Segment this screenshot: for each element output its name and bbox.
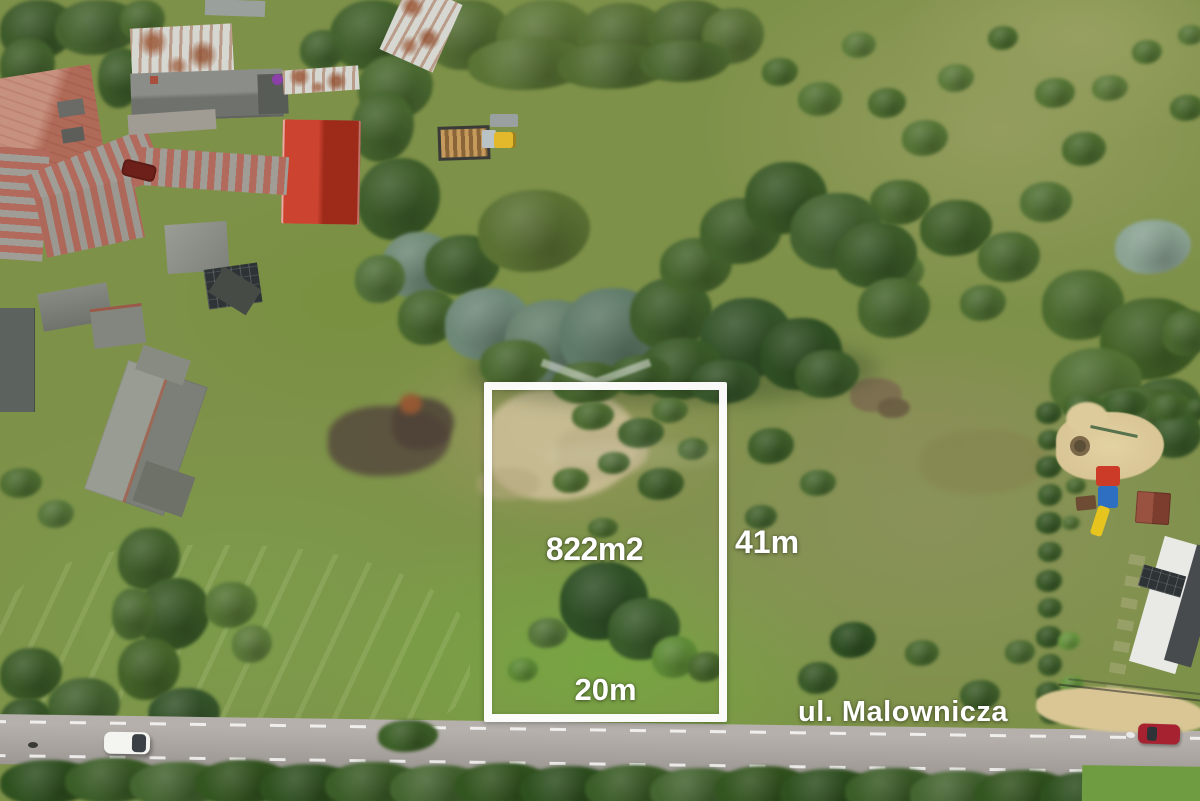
tree-blob <box>1178 25 1200 45</box>
red-gable-roof-house <box>281 119 361 224</box>
garden-shed-roof <box>164 221 229 274</box>
tree-blob <box>1162 310 1200 356</box>
gray-van <box>490 114 518 127</box>
aerial-photo: 822m2 41m 20m ul. Malownicza <box>0 0 1200 801</box>
plot-side-length-label: 41m <box>735 524 799 561</box>
grass-corner <box>1082 765 1200 801</box>
top-edge-shed <box>205 0 266 17</box>
chimney <box>150 76 158 84</box>
playhouse-roof <box>1135 491 1171 525</box>
car-windshield <box>1147 727 1157 741</box>
plot-area-label: 822m2 <box>473 531 716 568</box>
red-car <box>1138 723 1181 744</box>
road-debris <box>28 742 38 748</box>
plot-frontage-label: 20m <box>484 672 727 708</box>
yellow-tractor <box>494 132 516 148</box>
purple-trampoline <box>272 74 283 85</box>
play-tower-red-block <box>1096 466 1120 486</box>
white-car <box>104 732 150 755</box>
small-gray-house <box>90 303 146 349</box>
car-windshield <box>132 734 146 752</box>
garden-bench <box>1075 495 1096 511</box>
street-name-label: ul. Malownicza <box>798 696 1008 729</box>
fire-pit <box>1070 436 1090 456</box>
tree-blob <box>1186 398 1200 420</box>
left-edge-building <box>0 308 35 412</box>
tree-blob <box>1170 95 1200 121</box>
